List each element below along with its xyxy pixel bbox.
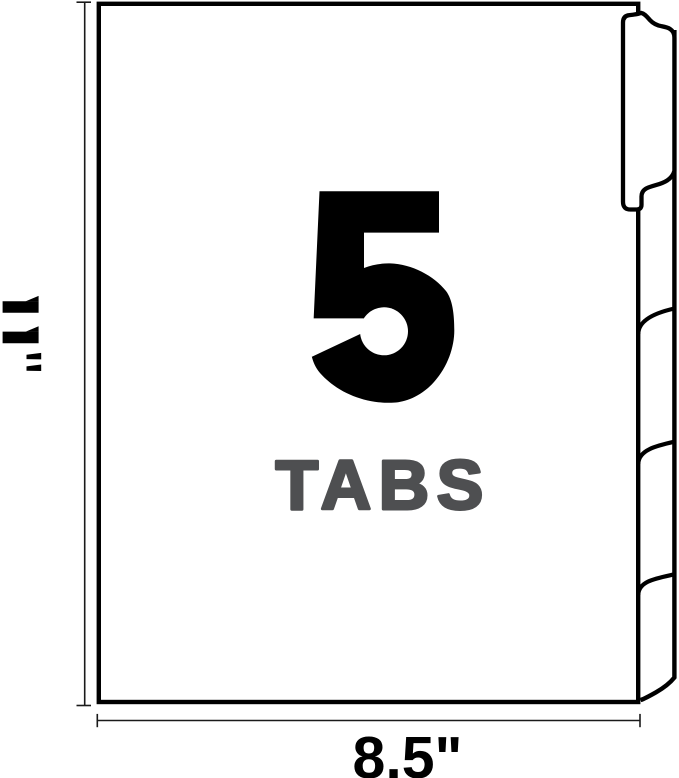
svg-text:TABS: TABS	[276, 446, 491, 524]
svg-text:8.5": 8.5"	[353, 725, 463, 778]
